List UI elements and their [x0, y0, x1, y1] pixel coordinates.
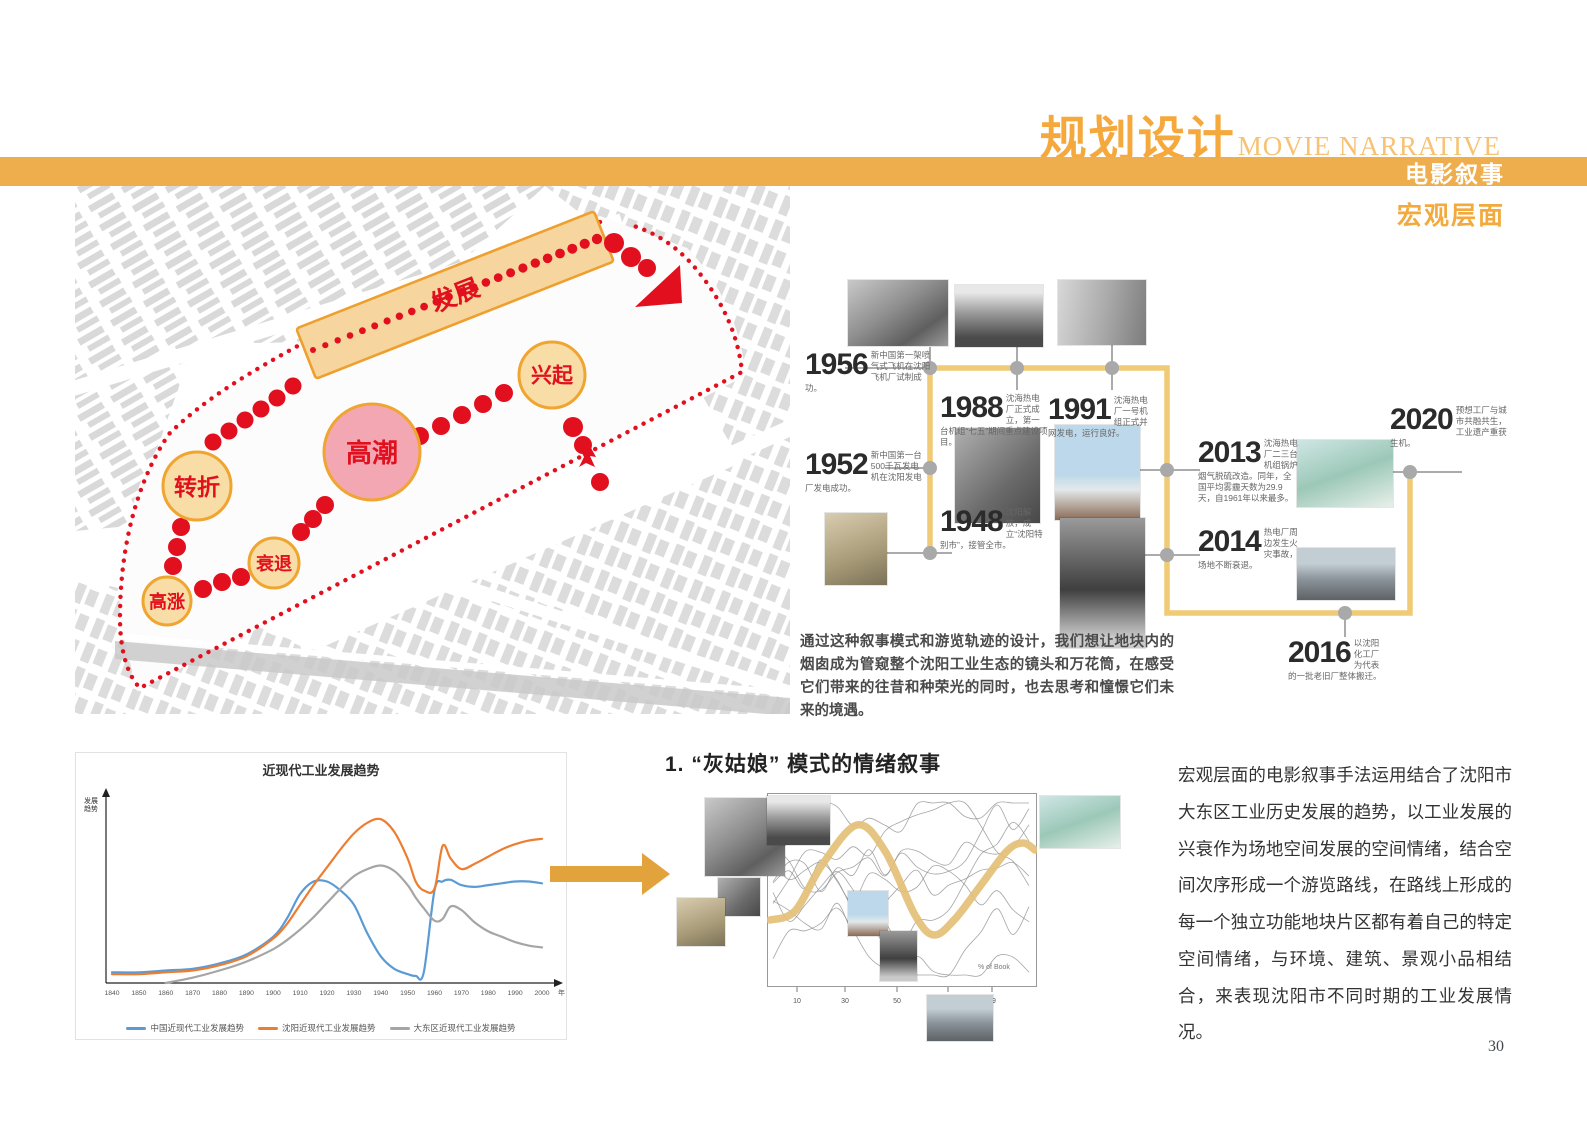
route-dot [494, 273, 503, 282]
x-tick-label: 1890 [239, 990, 254, 997]
x-tick-label: 1980 [481, 990, 496, 997]
timeline-photo-2013 [1055, 425, 1140, 520]
cinderella-tick-label: 30 [841, 998, 849, 1005]
timeline-photo-2020 [1297, 440, 1393, 507]
section-bar-label: 电影叙事 [1405, 155, 1505, 189]
route-dot [531, 258, 540, 267]
route-dot [445, 293, 453, 301]
route-dot [335, 337, 341, 343]
section-bar: 电影叙事 [0, 157, 1587, 186]
cinderella-axis-note: % of Book [978, 964, 1010, 971]
timeline-year: 2014 [1198, 527, 1261, 557]
timeline-photo-1991 [1058, 280, 1146, 345]
phase-label-gaozhang: 高涨 [149, 591, 185, 612]
timeline-photo-1948 [825, 513, 887, 585]
x-tick-label: 1900 [266, 990, 281, 997]
cinderella-photo-smoke [880, 931, 917, 981]
timeline-event-1952: 1952 新中国第一台500千瓦发电机在沈阳发电厂发电成功。 [805, 450, 927, 494]
timeline-event-2013: 2013 沈海热电厂二三台机组锅炉烟气脱硫改造。同年，全国平均雾霾天数为29.9… [1198, 438, 1298, 504]
x-tick-label: 1850 [131, 990, 146, 997]
x-tick-label: 1960 [427, 990, 442, 997]
cinderella-tick-label: 50 [893, 998, 901, 1005]
timeline-event-2014: 2014 热电厂周边发生火灾事故，场地不断衰退。 [1198, 527, 1298, 571]
site-map-svg: 发展 高潮 [75, 186, 790, 714]
route-dot [543, 254, 553, 264]
phase-label-gaochao: 高潮 [346, 438, 398, 468]
timeline-photo-1956 [848, 280, 948, 346]
timeline-event-1991: 1991 沈海热电厂一号机组正式并网发电，运行良好。 [1048, 395, 1156, 439]
x-axis-arrow [554, 979, 563, 987]
cinderella-photo-railway [927, 995, 993, 1041]
timeline-year: 1991 [1048, 395, 1111, 425]
trend-series-line [112, 819, 542, 974]
trend-legend: 中国近现代工业发展趋势沈阳近现代工业发展趋势大东区近现代工业发展趋势 [76, 1022, 566, 1034]
route-dot [555, 249, 565, 259]
section-sublabel: 宏观层面 [1397, 196, 1505, 232]
x-tick-label: 1880 [212, 990, 227, 997]
phase-label-shuaitui: 衰退 [255, 553, 292, 574]
route-dot [420, 303, 428, 311]
page-number: 30 [1478, 1038, 1514, 1056]
route-dot [482, 278, 491, 287]
cinderella-photo-sepia [677, 898, 725, 946]
trend-chart-card: 近现代工业发展趋势 发展趋势18401850186018701880189019… [75, 752, 567, 1040]
route-dot [384, 317, 391, 324]
x-tick-label: 1970 [454, 990, 469, 997]
x-tick-label: 1840 [104, 990, 119, 997]
x-tick-label: 1920 [319, 990, 334, 997]
route-dot [469, 283, 477, 291]
route-dot [371, 322, 378, 329]
timeline-year: 1948 [940, 507, 1003, 537]
phase-label-zhuanzhe: 转折 [174, 474, 220, 500]
route-dot [580, 239, 590, 249]
flow-arrow-icon [550, 852, 670, 896]
x-tick-label: 1950 [400, 990, 415, 997]
route-dot [310, 347, 316, 353]
x-tick-label: 2000 [534, 990, 549, 997]
route-dot [347, 332, 354, 339]
x-tick-label: 1870 [185, 990, 200, 997]
timeline-year: 1952 [805, 450, 868, 480]
legend-label: 沈阳近现代工业发展趋势 [282, 1022, 376, 1034]
route-dot [359, 327, 366, 334]
legend-item: 大东区近现代工业发展趋势 [390, 1022, 516, 1034]
site-map: 发展 高潮 [75, 186, 790, 714]
y-axis-arrow [102, 788, 110, 797]
legend-swatch [126, 1027, 146, 1030]
legend-item: 中国近现代工业发展趋势 [126, 1022, 244, 1034]
trend-chart-plot: 发展趋势184018501860187018801890190019101920… [76, 777, 568, 1015]
route-dot [592, 234, 602, 244]
timeline-photo-2014 [1060, 518, 1145, 648]
timeline-event-2016: 2016 以沈阳化工厂为代表的一批老旧厂整体搬迁。 [1288, 638, 1383, 682]
legend-swatch [258, 1027, 278, 1030]
timeline-event-1948: 1948 沈阳解放，成立“沈阳特别市”，接管全市。 [940, 507, 1048, 551]
legend-swatch [390, 1027, 410, 1030]
x-tick-label: 1930 [346, 990, 361, 997]
route-dot [506, 268, 515, 277]
legend-label: 中国近现代工业发展趋势 [150, 1022, 244, 1034]
x-axis-unit: 年 [558, 988, 565, 997]
timeline-event-1956: 1956 新中国第一架喷气式飞机在沈阳飞机厂试制成功。 [805, 350, 933, 394]
route-dot [408, 308, 416, 316]
cinderella-photo-chimney [848, 891, 888, 936]
legend-item: 沈阳近现代工业发展趋势 [258, 1022, 376, 1034]
page-canvas: 规划设计 MOVIE NARRATIVE 电影叙事 宏观层面 [0, 0, 1587, 1122]
macro-level-paragraph: 宏观层面的电影叙事手法运用结合了沈阳市大东区工业历史发展的趋势，以工业发展的兴衰… [1178, 757, 1512, 1051]
cinderella-photo-bw-skyline [767, 796, 830, 845]
x-tick-label: 1940 [373, 990, 388, 997]
timeline-event-1988: 1988 沈海热电厂正式成立，第一台机组“七五”期间重点建设项目。 [940, 393, 1048, 448]
route-dot [433, 298, 441, 306]
route-dot [396, 313, 403, 320]
timeline-event-2020: 2020 预想工厂与城市共融共生，工业遗产重获生机。 [1390, 405, 1508, 449]
timeline-photo-1988 [955, 285, 1043, 347]
cinderella-tick-label: 10 [793, 998, 801, 1005]
cinderella-panel: 1. “灰姑娘” 模式的情绪叙事 1030507099 % of Book [660, 748, 1170, 1060]
legend-label: 大东区近现代工业发展趋势 [414, 1022, 516, 1034]
x-tick-label: 1860 [158, 990, 173, 997]
timeline-year: 2013 [1198, 438, 1261, 468]
timeline-year: 2020 [1390, 405, 1453, 435]
x-tick-label: 1910 [293, 990, 308, 997]
x-tick-label: 1990 [508, 990, 523, 997]
route-dot [322, 342, 328, 348]
narrative-paragraph: 通过这种叙事模式和游览轨迹的设计，我们想让地块内的烟囱成为管窥整个沈阳工业生态的… [800, 631, 1174, 723]
trend-series-line [112, 880, 542, 980]
cinderella-photo-render [1040, 796, 1120, 848]
route-dot [518, 263, 527, 272]
phase-label-xingqi: 兴起 [531, 364, 574, 388]
timeline-year: 1988 [940, 393, 1003, 423]
y-axis-label: 发展趋势 [84, 796, 98, 813]
route-dot [457, 288, 465, 296]
cinderella-heading: 1. “灰姑娘” 模式的情绪叙事 [665, 748, 941, 778]
route-dot [567, 244, 577, 254]
timeline-photo-2016 [1297, 548, 1395, 600]
timeline-year: 1956 [805, 350, 868, 380]
timeline-year: 2016 [1288, 638, 1351, 668]
